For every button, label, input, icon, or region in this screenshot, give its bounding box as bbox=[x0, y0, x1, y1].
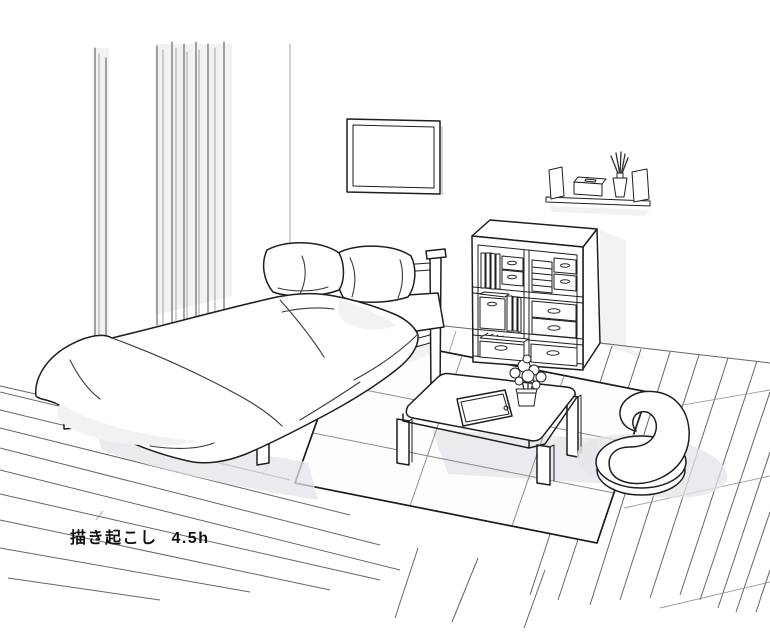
reed-diffuser bbox=[611, 152, 628, 197]
right-bookend bbox=[632, 169, 649, 202]
book bbox=[496, 254, 500, 289]
storage-box bbox=[480, 341, 524, 361]
pillow-left bbox=[264, 243, 344, 296]
book bbox=[513, 297, 517, 331]
illustration-canvas: 描き起こし 4.5h bbox=[0, 0, 770, 640]
caption-text: 描き起こし 4.5h bbox=[70, 524, 330, 548]
cell-top-right bbox=[532, 258, 576, 293]
shelf-side-face bbox=[583, 229, 600, 369]
towel-stack bbox=[532, 260, 552, 293]
wall-shelf bbox=[546, 152, 650, 216]
cell-mid-right bbox=[532, 301, 576, 338]
table-leg-south bbox=[537, 445, 550, 485]
book bbox=[481, 253, 485, 288]
cube-shelf bbox=[472, 220, 600, 370]
picture-frame bbox=[347, 119, 442, 195]
book bbox=[507, 296, 512, 331]
shelf-wall-shadow bbox=[600, 230, 648, 360]
book bbox=[518, 297, 521, 332]
pillows bbox=[264, 243, 415, 302]
left-bookend bbox=[549, 167, 564, 199]
book bbox=[491, 253, 495, 289]
table-leg-west bbox=[397, 419, 409, 465]
cell-bottom-right bbox=[531, 344, 577, 366]
book bbox=[486, 253, 490, 288]
cell-top-left bbox=[481, 253, 523, 289]
curtains bbox=[93, 42, 290, 341]
pot bbox=[517, 393, 536, 406]
tissue-box bbox=[574, 177, 606, 196]
